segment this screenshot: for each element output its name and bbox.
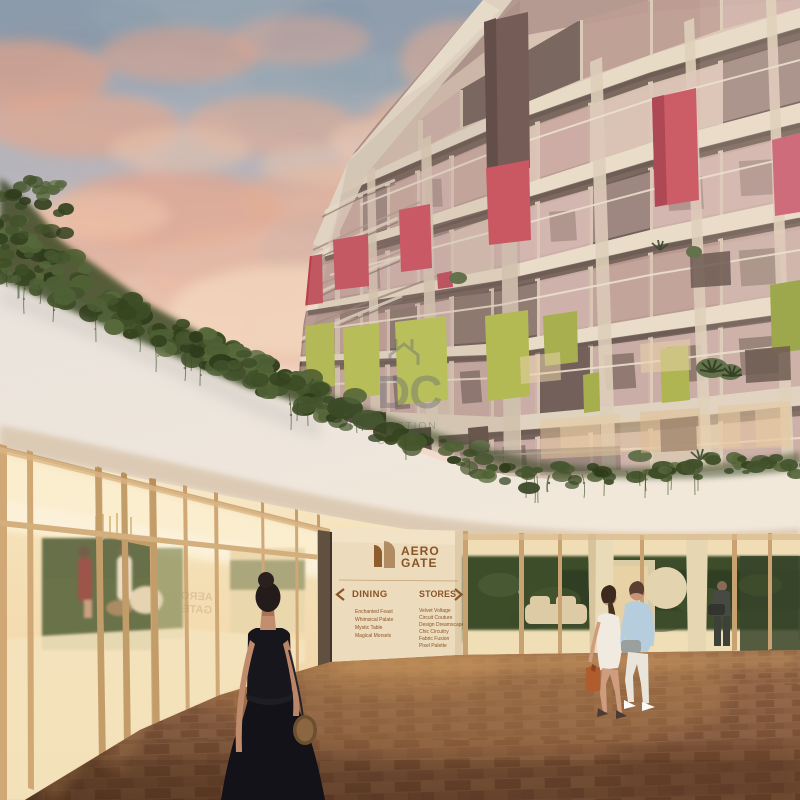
svg-text:Design Dreamscape: Design Dreamscape (419, 622, 465, 628)
svg-text:Circuit Couture: Circuit Couture (419, 615, 453, 621)
svg-text:Chic Circuitry: Chic Circuitry (419, 629, 449, 635)
svg-text:Magical Morsels: Magical Morsels (355, 633, 392, 639)
svg-text:Fabric Fusion: Fabric Fusion (419, 636, 450, 642)
svg-text:STORES: STORES (419, 589, 456, 599)
svg-text:Enchanted Feast: Enchanted Feast (355, 609, 393, 615)
svg-text:GATE: GATE (401, 556, 437, 570)
svg-text:Whimsical Palate: Whimsical Palate (355, 617, 394, 623)
svg-text:Mystic Table: Mystic Table (355, 625, 383, 631)
svg-text:Velvet Voltage: Velvet Voltage (419, 608, 451, 614)
svg-text:DINING: DINING (352, 589, 388, 600)
svg-text:DC: DC (377, 366, 441, 418)
svg-text:Pixel Palette: Pixel Palette (419, 643, 447, 649)
